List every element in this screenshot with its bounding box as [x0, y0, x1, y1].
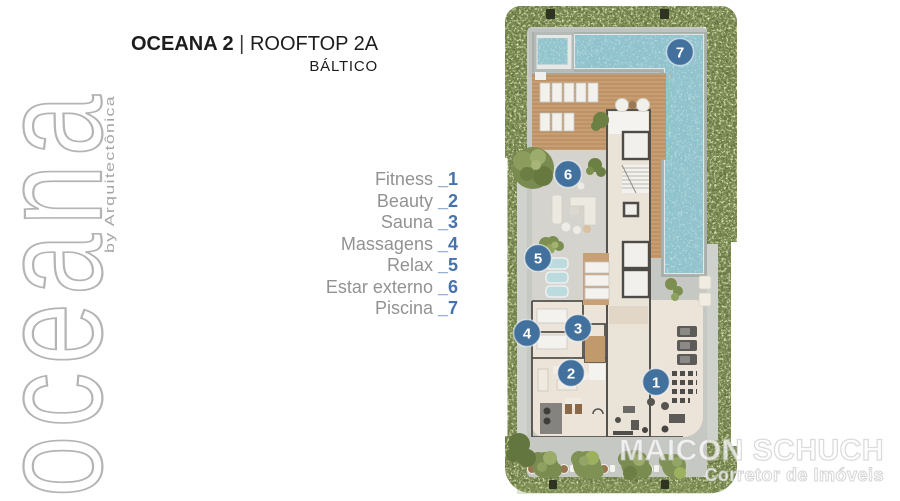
svg-text:3: 3	[574, 321, 582, 338]
svg-text:by Arquitectônica: by Arquitectônica	[102, 95, 117, 253]
svg-text:1: 1	[652, 375, 660, 392]
svg-text:6: 6	[564, 167, 572, 184]
svg-text:4: 4	[523, 326, 532, 343]
svg-text:5: 5	[534, 251, 542, 268]
svg-text:7: 7	[676, 45, 684, 62]
svg-text:2: 2	[567, 366, 575, 383]
